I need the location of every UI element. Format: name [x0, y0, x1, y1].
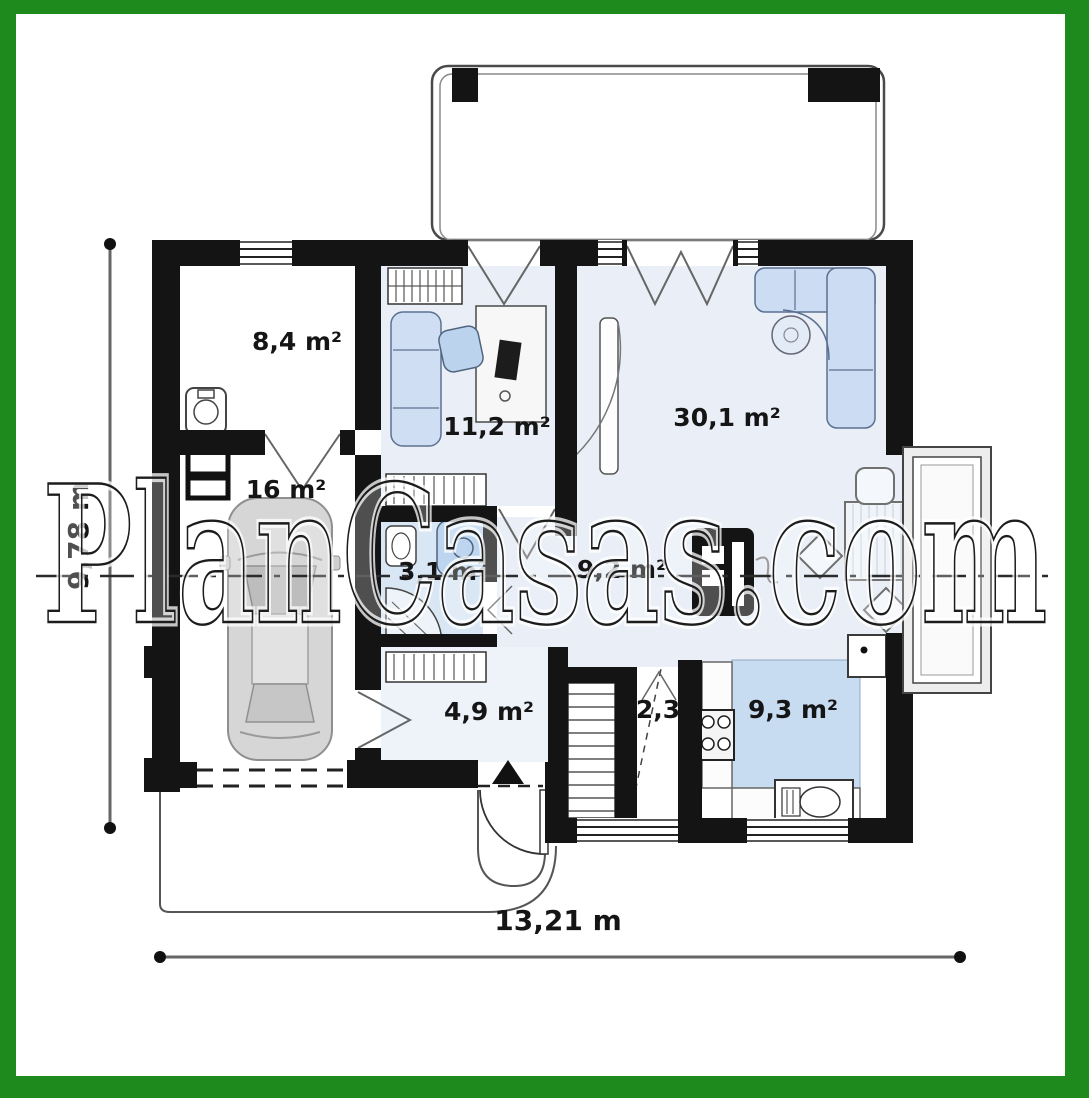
terrace-wall-stub-left [452, 68, 478, 102]
stove [698, 710, 734, 760]
label-corridor: 2,3 [636, 695, 680, 724]
floor-plan-drawing: 8,4 m² 16 m² 11,2 m² 30,1 m² 3,1 m² 9,2 … [0, 0, 1089, 1098]
window-top-living-right [733, 240, 763, 266]
window-top-living-left [593, 240, 627, 266]
hall-armchair [391, 312, 441, 446]
floor-plan-page: 8,4 m² 16 m² 11,2 m² 30,1 m² 3,1 m² 9,2 … [0, 0, 1089, 1098]
hall-desk [476, 306, 546, 422]
hall-wardrobe-top [388, 268, 462, 304]
window-bottom-kitchen [742, 818, 853, 843]
label-hall: 11,2 m² [443, 412, 550, 441]
side-table [772, 316, 810, 354]
terrace-wall-stub-right [808, 68, 880, 102]
watermark-text: PlanCasas.com [43, 444, 1048, 667]
label-storage: 8,4 m² [252, 327, 342, 356]
window-top-storage [235, 240, 297, 266]
label-living: 30,1 m² [673, 403, 780, 432]
hall-desk-chair [437, 324, 485, 373]
storage-basin [186, 388, 226, 434]
kitchen-sink [775, 780, 853, 824]
label-vestibule: 4,9 m² [444, 697, 534, 726]
width-dimension-label: 13,21 m [494, 904, 622, 937]
label-kitchen: 9,3 m² [748, 695, 838, 724]
window-bottom-stairs [572, 818, 683, 843]
